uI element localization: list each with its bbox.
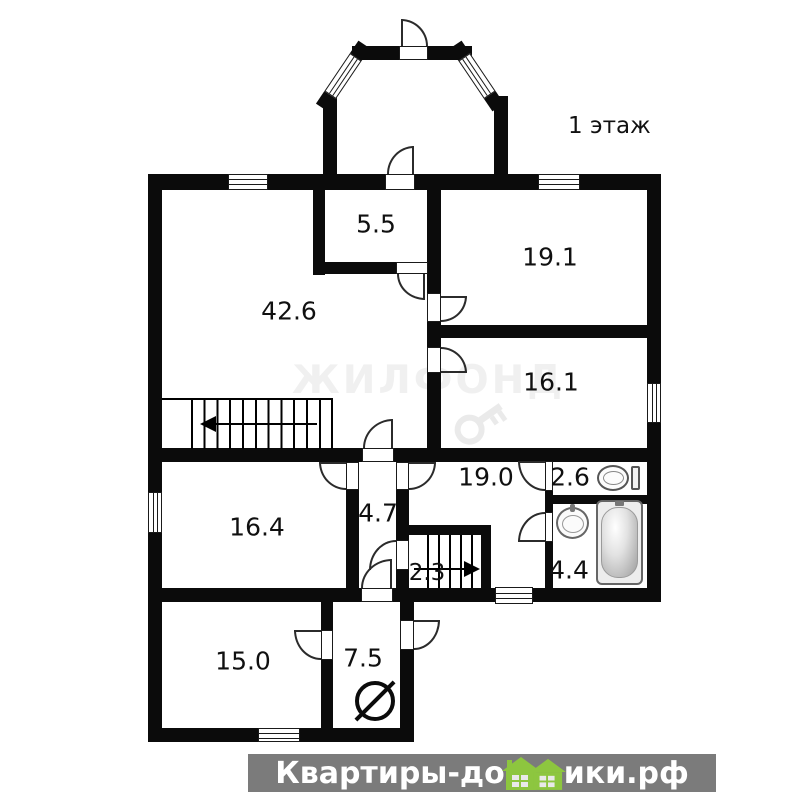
room-label-bedroom2: 16.1 [523, 368, 579, 397]
room-label-room150: 15.0 [215, 647, 271, 676]
wall-middle [148, 448, 661, 462]
wall-cellar-stairs-top [396, 525, 491, 535]
room-label-wc: 2.6 [550, 463, 590, 492]
wall-bedrooms-divider [441, 325, 647, 338]
door-leaf-hall-bathroom [545, 512, 553, 542]
house-windows [512, 775, 528, 787]
door-arc-boiler-exit [414, 620, 440, 650]
stairs-arrow-head [200, 416, 216, 432]
wall-living-right [427, 190, 441, 462]
room-label-boiler: 7.5 [343, 644, 383, 673]
stairs-main [162, 398, 333, 449]
window-right [647, 383, 661, 423]
door-leaf-boiler-exit [400, 620, 414, 650]
stairs-direction-arrow [214, 423, 317, 425]
sink-icon [556, 505, 590, 540]
room-label-closet: 5.5 [356, 210, 396, 239]
wall-main-left [148, 174, 162, 602]
house-icon [533, 757, 563, 791]
floor-plan-page: ЖИЛФОНД 1 этаж [0, 0, 799, 799]
door-arc-living-corridor [363, 419, 393, 448]
door-arc-porch-entry [401, 19, 428, 46]
door-leaf-living-bedroom1 [427, 293, 441, 322]
door-arc-hall-bathroom [518, 512, 545, 542]
sink-tap [570, 504, 575, 512]
house-windows [539, 776, 554, 787]
window-ext-bottom [258, 728, 300, 742]
room-label-corridor: 4.7 [358, 499, 398, 528]
door-leaf-living-corridor [362, 448, 394, 462]
porch-diagonal-left [316, 41, 370, 112]
room-label-bathroom: 4.4 [549, 556, 589, 585]
door-arc-closet-living [397, 274, 425, 300]
room-label-hall: 19.0 [458, 463, 514, 492]
toilet-tank [631, 466, 640, 490]
door-leaf-corridor-boiler [361, 588, 393, 602]
house-chimney [507, 760, 512, 769]
door-leaf-corridor-cellarstairs [396, 540, 409, 570]
window-porch-right [458, 53, 495, 99]
door-leaf-living-bedroom2 [427, 347, 441, 373]
room-label-cellarstairs: 2.3 [409, 560, 446, 586]
door-arc-corridor-room164 [319, 462, 346, 490]
porch-diagonal-right [450, 41, 504, 112]
door-arc-corridor-boiler [361, 559, 392, 588]
door-arc-hall-wc [518, 461, 545, 491]
toilet-bowl-inner [603, 471, 624, 485]
footer-text-right: ики.рф [564, 756, 689, 791]
window-top-left [228, 174, 268, 190]
door-arc-living-bedroom2 [441, 347, 467, 373]
window-top-right [538, 174, 580, 190]
stove-icon [355, 681, 395, 721]
door-leaf-closet-living [396, 262, 428, 274]
door-leaf-porch-closet [385, 174, 415, 190]
house-roof [530, 759, 566, 772]
wall-cellar-stairs-right [481, 535, 491, 588]
bathtub-tap [615, 501, 624, 506]
sink-basin-inner [562, 515, 584, 533]
door-arc-corridor-hall [409, 462, 436, 490]
room-label-living: 42.6 [261, 297, 317, 326]
wall-ext-left [148, 602, 162, 742]
stairs-arrow-head [464, 561, 480, 577]
footer-banner: Квартиры-до ики.рф [248, 754, 716, 792]
entry-steps [495, 587, 533, 604]
toilet-icon [597, 463, 643, 493]
key-tooth [490, 415, 499, 425]
bathtub-inner [601, 507, 638, 578]
room-label-room164: 16.4 [229, 513, 285, 542]
door-leaf-room150-boiler [321, 630, 333, 660]
window-left [148, 492, 162, 533]
door-leaf-corridor-hall [396, 462, 409, 490]
footer-text-left: Квартиры-до [275, 756, 505, 791]
window-porch-left [324, 53, 361, 99]
room-label-bedroom1: 19.1 [522, 243, 578, 272]
door-leaf-corridor-room164 [346, 462, 359, 490]
key-tooth [497, 410, 507, 422]
door-arc-living-bedroom1 [441, 296, 467, 322]
wall-main-bottom [148, 588, 661, 602]
door-arc-porch-closet [387, 146, 414, 174]
floor-title: 1 этаж [568, 113, 651, 139]
door-arc-room150-boiler [294, 630, 321, 660]
door-leaf-porch-entry [399, 46, 428, 60]
bathtub-icon [596, 500, 643, 585]
wall-ext-rooms-divider [321, 602, 333, 728]
